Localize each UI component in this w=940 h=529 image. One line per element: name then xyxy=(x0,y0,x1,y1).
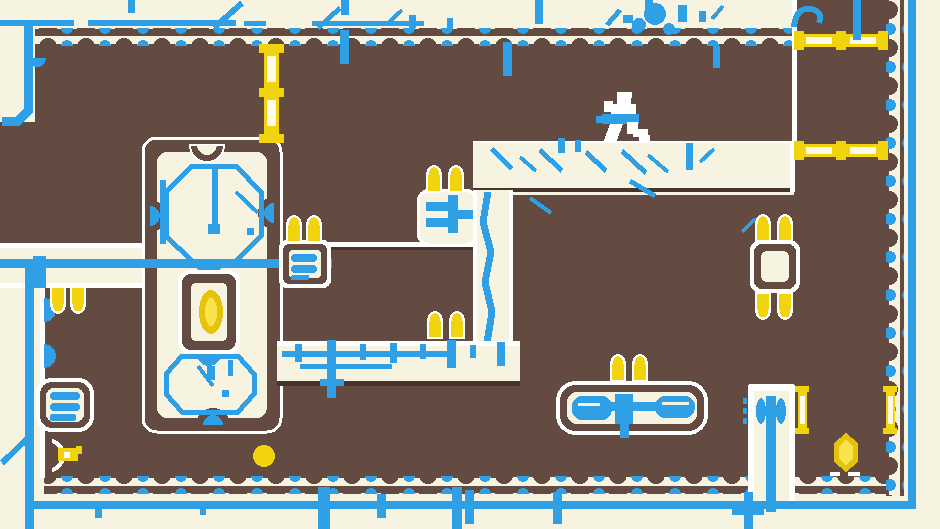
game-canvas[interactable] xyxy=(0,0,940,529)
spike-down xyxy=(51,287,65,313)
spike-up xyxy=(449,166,463,192)
fan-box xyxy=(279,240,331,288)
vertical-channel xyxy=(473,190,513,343)
spike-up xyxy=(307,216,321,242)
spike-up xyxy=(427,166,441,192)
wall-vent xyxy=(36,378,94,432)
game-viewport[interactable] xyxy=(0,0,940,529)
spike-up xyxy=(287,216,301,242)
spike-up xyxy=(633,355,647,381)
pod-structure xyxy=(418,190,477,245)
vent-bar xyxy=(50,403,80,411)
spike-down xyxy=(756,293,770,319)
fan-bar xyxy=(291,254,317,262)
spike-up xyxy=(778,215,792,241)
player-face-notch xyxy=(631,98,639,104)
floating-spike-block xyxy=(750,240,800,293)
coin xyxy=(253,445,275,467)
scallop-top-edge xyxy=(35,28,793,46)
fan-bar xyxy=(291,275,309,280)
vent-bar xyxy=(50,414,76,421)
left-slab-top xyxy=(0,243,143,248)
spike-up xyxy=(428,312,442,338)
vent-bar xyxy=(50,392,80,400)
player-foot xyxy=(639,135,650,143)
spike-up xyxy=(450,312,464,338)
fan-bar xyxy=(291,265,317,273)
capsule-fan xyxy=(556,381,708,438)
spike-down xyxy=(71,287,85,313)
spike-up xyxy=(611,355,625,381)
spike-down xyxy=(778,293,792,319)
spike-up xyxy=(756,215,770,241)
